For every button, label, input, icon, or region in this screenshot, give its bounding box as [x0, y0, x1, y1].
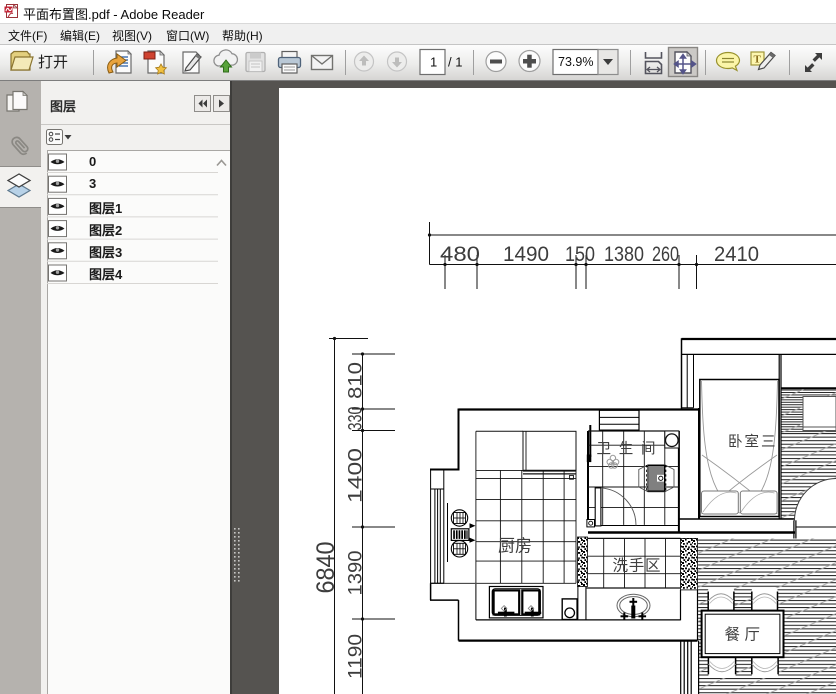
svg-text:厨房: 厨房 — [498, 537, 532, 556]
svg-text:洗手区: 洗手区 — [613, 557, 661, 575]
svg-text:卫生间: 卫生间 — [597, 441, 656, 458]
svg-text:2410: 2410 — [714, 243, 759, 266]
svg-text:6840: 6840 — [312, 542, 340, 594]
svg-text:1490: 1490 — [503, 243, 549, 266]
svg-text:1380: 1380 — [604, 243, 644, 266]
svg-text:1400: 1400 — [346, 448, 367, 503]
svg-text:150: 150 — [565, 243, 595, 266]
svg-text:480: 480 — [440, 243, 480, 266]
svg-text:1190: 1190 — [346, 634, 367, 679]
svg-text:330: 330 — [346, 407, 367, 431]
svg-text:卧室三: 卧室三 — [728, 434, 776, 451]
svg-text:1390: 1390 — [346, 551, 367, 596]
svg-text:810: 810 — [346, 362, 367, 399]
svg-text:260: 260 — [652, 243, 679, 266]
